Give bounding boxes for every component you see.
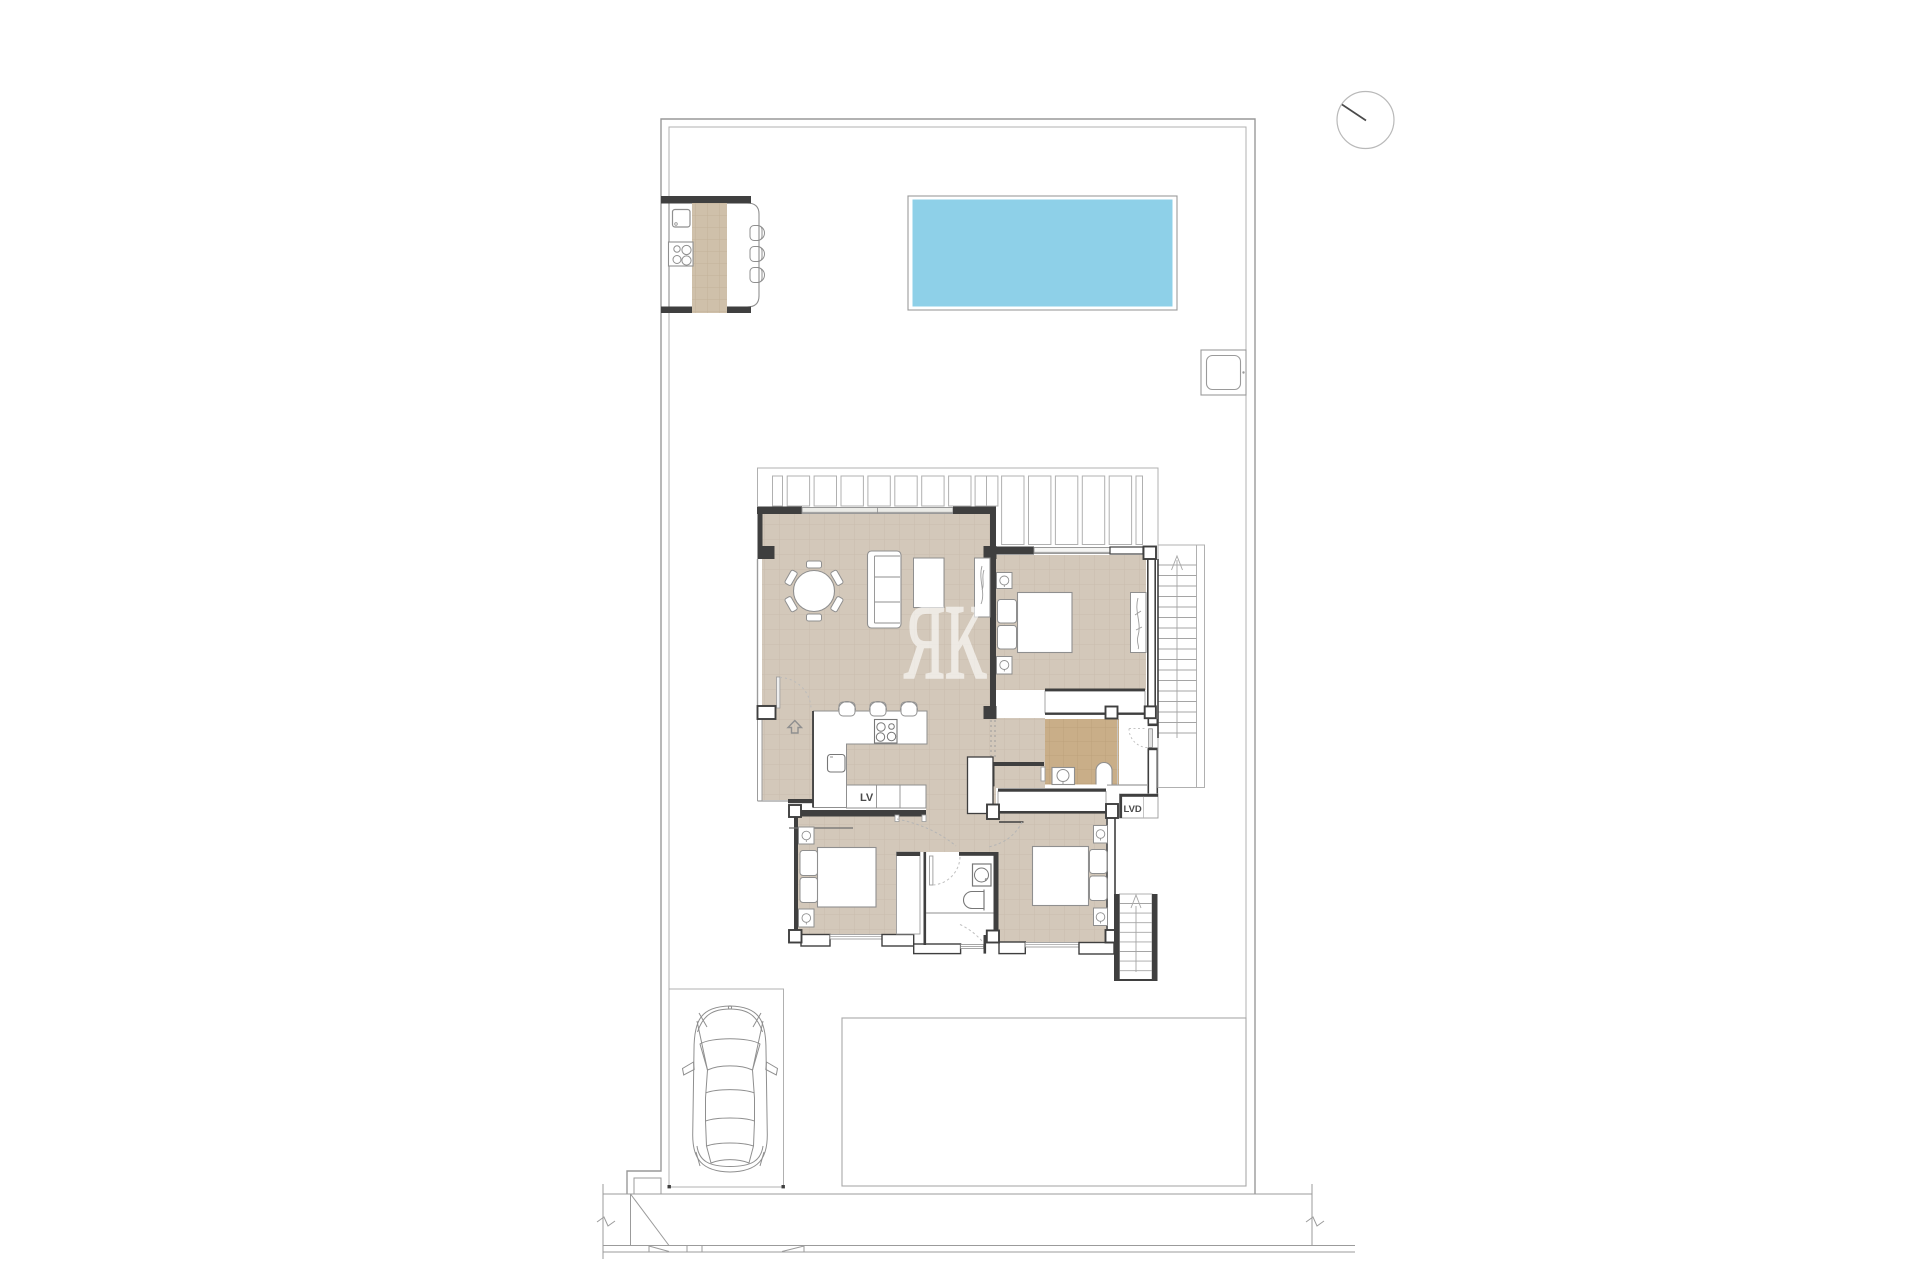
svg-text:LVD: LVD (1124, 804, 1142, 815)
svg-text:ЯК: ЯК (904, 583, 987, 700)
svg-text:LV: LV (860, 792, 874, 804)
